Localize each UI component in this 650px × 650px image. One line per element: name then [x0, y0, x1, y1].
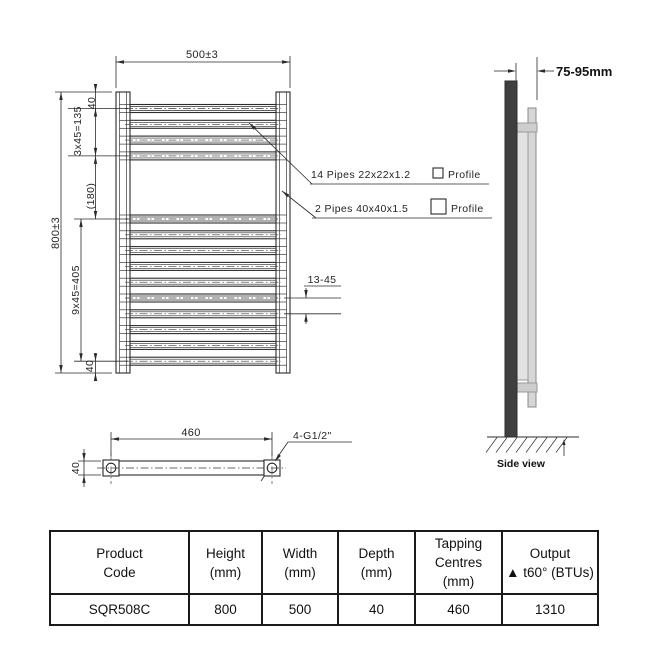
bottom-offset-dimension-label: 40	[84, 360, 96, 372]
spec-table-wrap: ProductCodeHeight(mm)Width(mm)Depth(mm)T…	[49, 530, 599, 626]
arrowhead	[116, 60, 124, 63]
pipes-note-2-label: 2 Pipes 40x40x1.5	[315, 203, 408, 215]
arrowhead	[59, 365, 62, 373]
table-cell: SQR508C	[50, 594, 189, 625]
width-dimension-label: 500±3	[186, 49, 218, 61]
arrowhead	[304, 290, 307, 298]
table-header-row: ProductCodeHeight(mm)Width(mm)Depth(mm)T…	[50, 531, 598, 594]
depth-dimension-label: 40	[70, 462, 82, 474]
table-header-cell: Width(mm)	[262, 531, 338, 594]
arrowhead	[82, 453, 85, 461]
arrowhead	[94, 156, 97, 164]
side-view-front-bar	[528, 108, 536, 407]
middle-gap-dimension-label: (180)	[85, 183, 97, 210]
table-header-cell: Output▲ t60° (BTUs)	[502, 531, 598, 594]
floor-hatch-line	[536, 438, 547, 453]
table-cell: 800	[189, 594, 262, 625]
rail-gap-dimension-label: 13-45	[308, 274, 337, 286]
table-header-cell: Depth(mm)	[338, 531, 415, 594]
table-data-row: SQR508C800500404601310	[50, 594, 598, 625]
table-header-cell: TappingCentres(mm)	[415, 531, 502, 594]
side-view-radiator-panel	[517, 131, 528, 380]
arrowhead	[94, 373, 97, 381]
pipes-note-1-label: 14 Pipes 22x22x1.2	[311, 169, 410, 181]
floor-hatch-line	[526, 438, 537, 453]
arrowhead	[94, 148, 97, 156]
small-profile-icon	[433, 168, 443, 178]
floor-hatch-line	[506, 438, 517, 453]
arrowhead	[282, 60, 290, 63]
right-tube	[276, 92, 290, 373]
table-cell: 40	[338, 594, 415, 625]
tapping-thread-label: 4-G1/2"	[293, 430, 332, 442]
arrowhead	[304, 314, 307, 322]
arrowhead	[537, 69, 545, 72]
floor-hatch-line	[486, 438, 497, 453]
pipes-note-1-profile-label: Profile	[448, 169, 481, 181]
bottom-group-dimension-label: 9x45=405	[70, 265, 82, 315]
towel-radiator-spec-sheet: 500±3 800±3 40 3x45=135 (180) 9x45=405 4…	[0, 0, 650, 650]
front-view-rails	[120, 105, 287, 366]
top-offset-dimension-label: 40	[86, 97, 98, 109]
side-view-caption: Side view	[497, 458, 546, 470]
table-header-cell: ProductCode	[50, 531, 189, 594]
height-dimension-label: 800±3	[50, 217, 62, 249]
side-view-top-bracket	[516, 123, 537, 132]
arrowhead	[79, 353, 82, 361]
tapping-centres-dimension-label: 460	[181, 427, 200, 439]
side-view-bottom-bracket	[516, 383, 537, 392]
table-cell: 500	[262, 594, 338, 625]
top-group-dimension-label: 3x45=135	[72, 106, 84, 156]
side-view	[486, 81, 579, 456]
arrowhead	[508, 69, 516, 72]
spec-table: ProductCodeHeight(mm)Width(mm)Depth(mm)T…	[49, 530, 599, 626]
large-profile-icon	[431, 199, 446, 214]
table-header-cell: Height(mm)	[189, 531, 262, 594]
pipes-note-2-profile-label: Profile	[451, 203, 484, 215]
arrowhead	[79, 219, 82, 227]
arrowhead	[82, 475, 85, 483]
arrowhead	[94, 84, 97, 92]
left-tube	[116, 92, 130, 373]
floor-hatch-line	[496, 438, 507, 453]
table-cell: 460	[415, 594, 502, 625]
bottom-view	[97, 452, 286, 484]
wall-distance-label: 75-95mm	[556, 64, 612, 79]
side-view-wall	[505, 81, 517, 437]
floor-hatch-line	[516, 438, 527, 453]
arrowhead	[111, 437, 119, 440]
arrowhead	[59, 92, 62, 100]
floor-hatch-line	[546, 438, 557, 453]
arrowhead	[264, 437, 272, 440]
table-cell: 1310	[502, 594, 598, 625]
arrowhead	[94, 211, 97, 219]
